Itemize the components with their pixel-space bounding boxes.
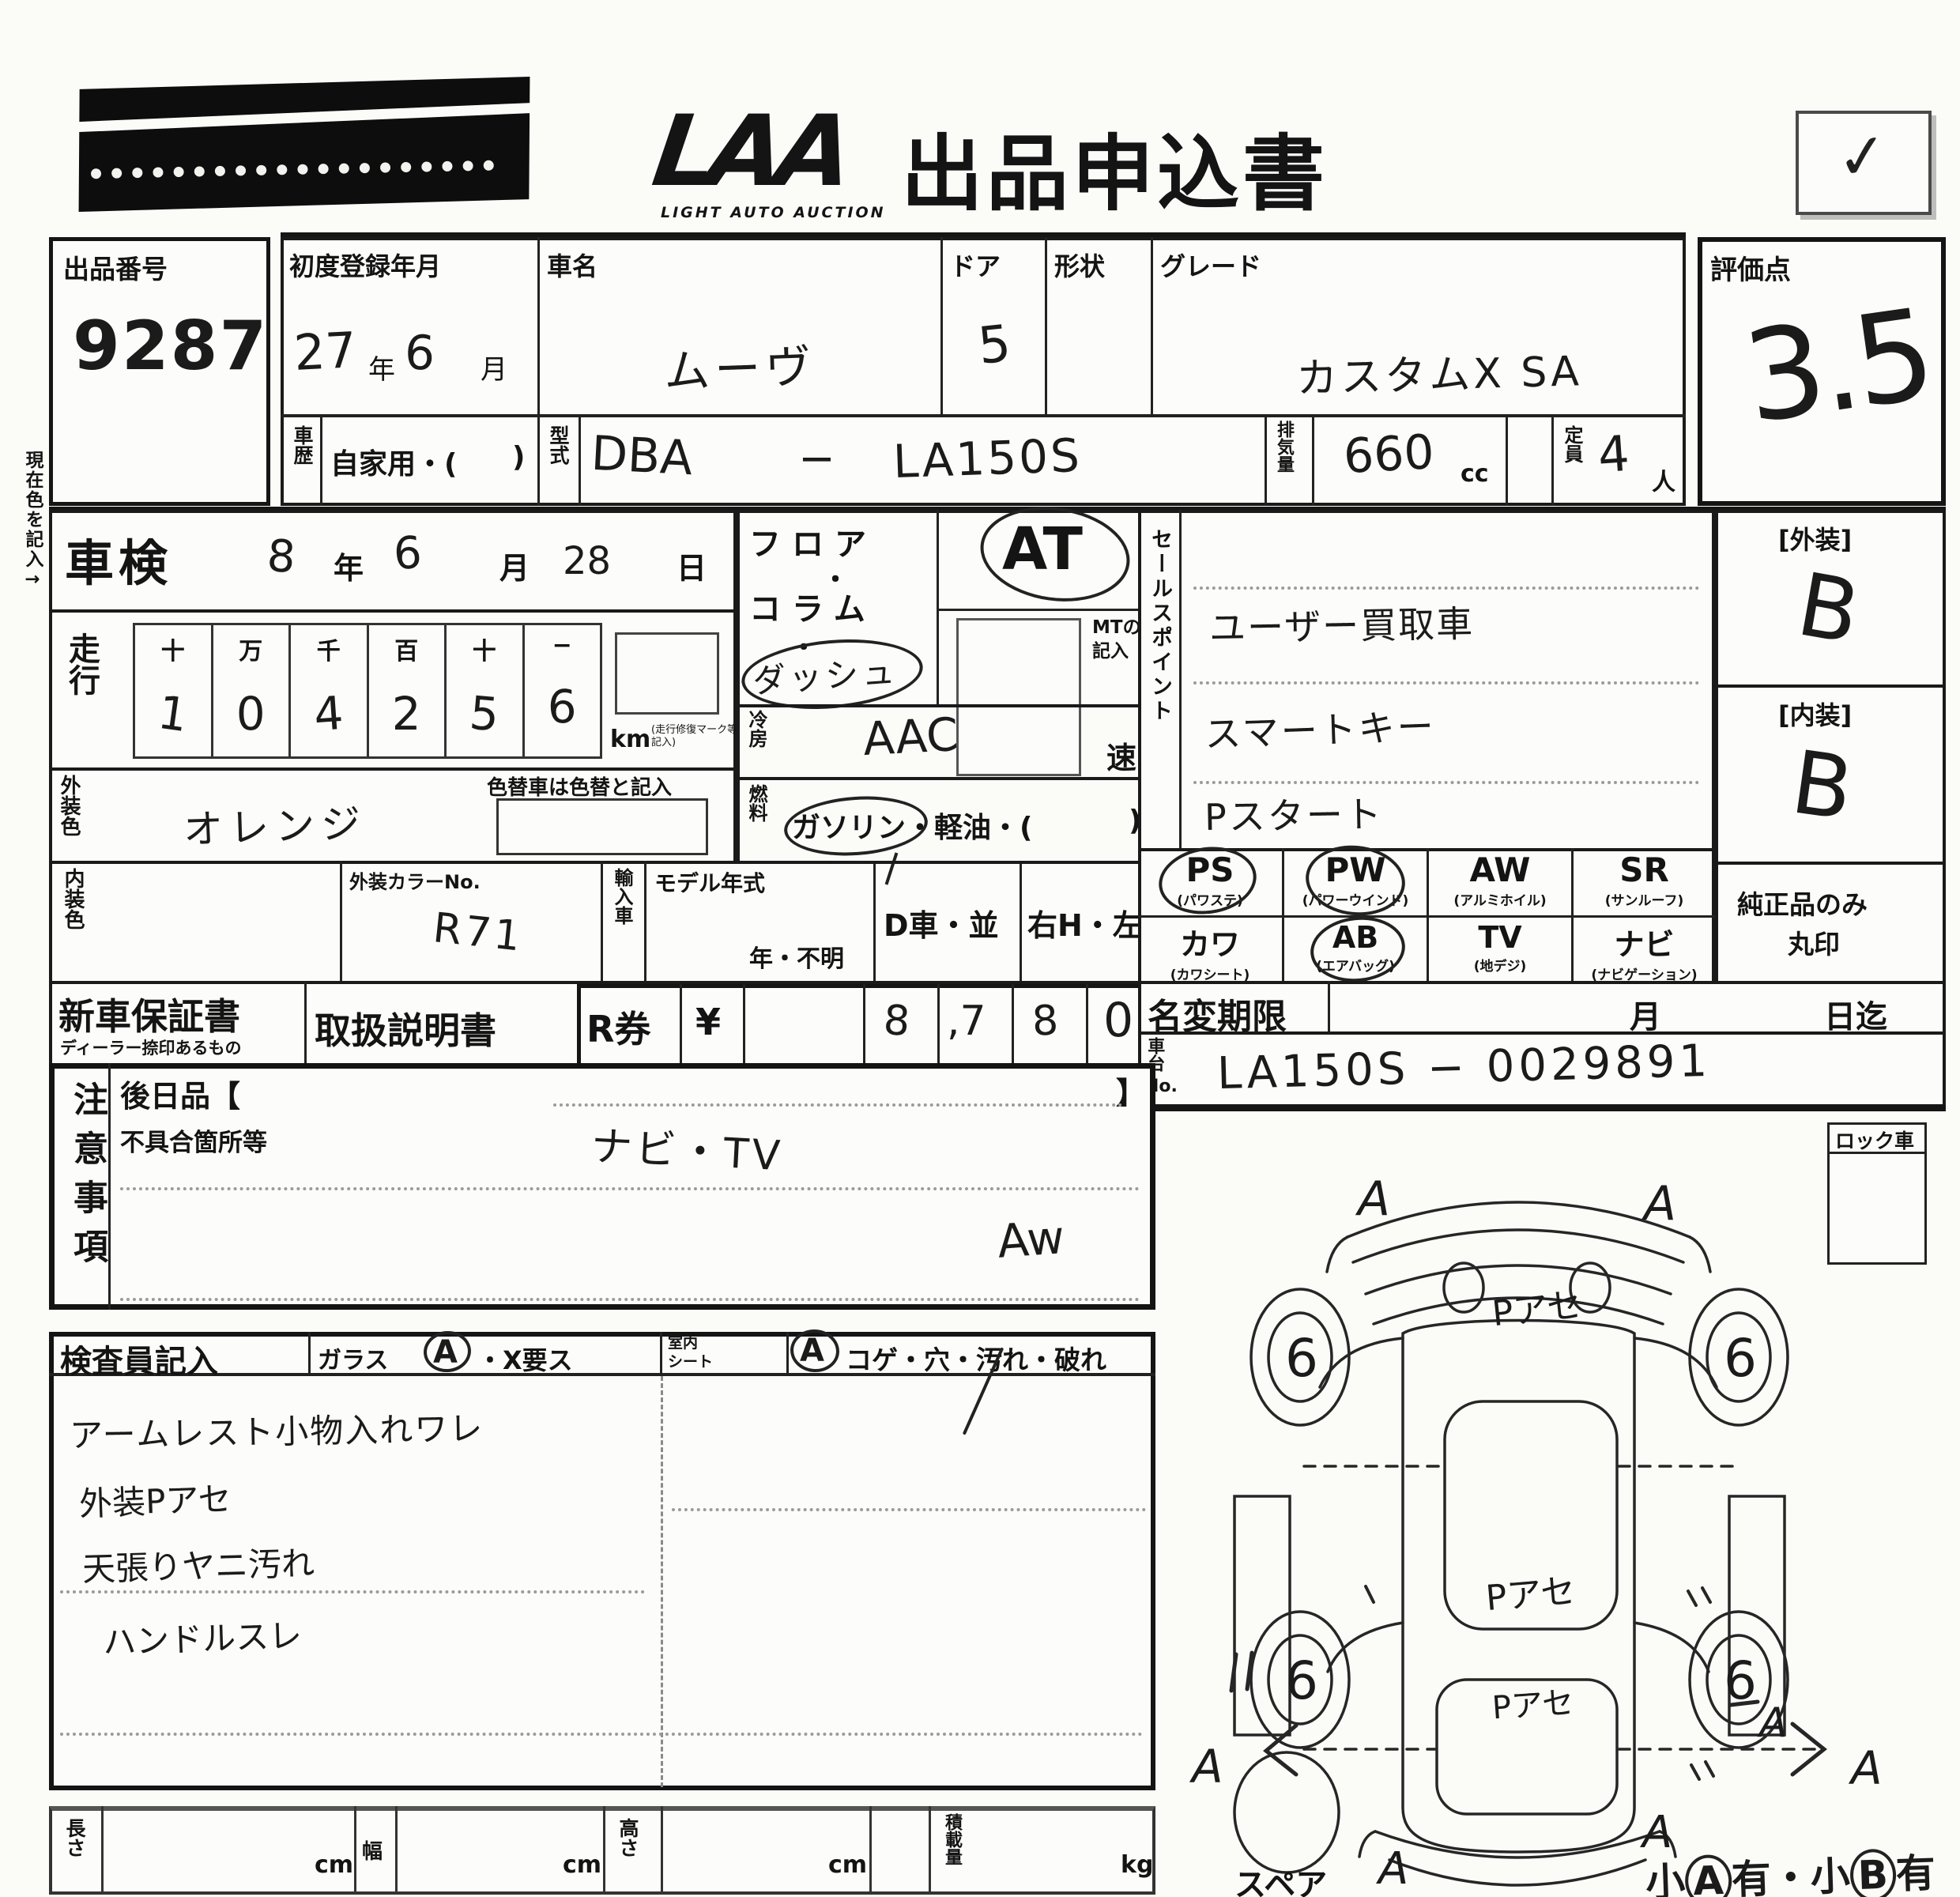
shaken-month-unit: 月 — [499, 544, 530, 587]
mileage-digit: 6 — [525, 680, 601, 734]
name-change-month-unit: 月 — [1630, 991, 1661, 1037]
dotted-line — [553, 1103, 1122, 1107]
check-icon: ✓ — [1833, 119, 1891, 195]
diagram-panel-mark-hood: Pアセ — [1491, 1285, 1584, 1335]
mileage-unit: km — [610, 726, 650, 753]
notes-later-label: 後日品【 — [120, 1072, 240, 1115]
mileage-digit: 1 — [132, 682, 214, 746]
diagram-corner-mark: A — [1355, 1171, 1390, 1227]
auction-sheet: LAA LIGHT AUTO AUCTION 出品申込書 ✓ 出品番号 9287… — [0, 0, 1960, 1897]
sales-points-label: セールスポイント — [1144, 528, 1175, 724]
height-label: 高さ — [613, 1818, 642, 1857]
mileage-col-header: 万 — [213, 632, 289, 666]
equip-aw: AW(アルミホイル) — [1429, 850, 1571, 909]
lot-number-value: 9287 — [73, 307, 268, 386]
mileage-unit-note: (走行修復マーク等記入) — [651, 724, 738, 749]
score-value: 3.5 — [1736, 282, 1939, 452]
car-name-value: ムーヴ — [663, 330, 817, 402]
dotted-line — [1193, 681, 1699, 685]
history-label: 車歴 — [288, 425, 316, 465]
equip-navi: ナビ(ナビゲーション) — [1574, 920, 1715, 983]
sales-point-item: ユーザー買取車 — [1208, 595, 1474, 652]
note-a-circled: A — [1684, 1854, 1732, 1897]
diagram-wheel-mark: 6 — [1724, 1650, 1757, 1711]
exterior-grade-label: [外装] — [1778, 520, 1852, 556]
first-registration-month: 6 — [404, 325, 436, 381]
first-registration-label: 初度登録年月 — [289, 247, 441, 283]
capacity-value: 4 — [1596, 424, 1631, 485]
width-unit: cm — [563, 1851, 601, 1879]
spare-label: スペア — [1234, 1859, 1327, 1897]
diagram-corner-mark: A — [1376, 1843, 1408, 1895]
model-code-prefix: DBA — [590, 426, 694, 487]
height-unit: cm — [828, 1851, 867, 1879]
inspector-glass-rest: ・X要ス — [477, 1341, 573, 1377]
r-ticket-digit: 0 — [1103, 993, 1133, 1048]
diagram-wheel-mark: 6 — [1285, 1328, 1318, 1389]
dotted-line — [120, 1298, 1140, 1301]
inspector-seat-label: 室内シート — [668, 1334, 713, 1372]
length-label: 長さ — [60, 1818, 89, 1857]
shift-column: コラム — [749, 583, 876, 629]
diagram-panel-mark-rear: Pアセ — [1491, 1684, 1575, 1726]
mileage-table: 十 1 万 0 千 4 百 2 十 5 − 6 — [133, 623, 602, 759]
mileage-digit: 4 — [289, 685, 368, 743]
width-label: 幅 — [362, 1835, 383, 1865]
inspector-label: 検査員記入 — [60, 1336, 218, 1382]
mileage-digit: 0 — [213, 687, 289, 741]
shaken-year-unit: 年 — [334, 544, 364, 587]
diagram-side-mark: A — [1189, 1740, 1223, 1793]
shaken-day-unit: 日 — [677, 544, 707, 587]
shaken-label: 車検 — [65, 523, 172, 594]
notes-entry-1: ナビ・TV — [590, 1113, 785, 1182]
dotted-line — [60, 1733, 1143, 1736]
equip-kawa: カワ(カワシート) — [1138, 920, 1282, 983]
diagram-bottom-note: 小A有・小B有 — [1645, 1842, 1936, 1897]
model-code-dash: − — [798, 433, 835, 485]
notes-entry-2: Aw — [996, 1210, 1066, 1269]
car-name-label: 車名 — [547, 247, 597, 283]
grade-label: グレード — [1160, 247, 1261, 283]
exterior-color-label: 外装色 — [58, 775, 79, 836]
inspector-seat-rest: コゲ・穴・汚れ・破れ — [846, 1339, 1106, 1377]
mileage-label: 走行 — [58, 632, 104, 696]
color-no-value: R71 — [431, 904, 526, 961]
manual-label: 取扱説明書 — [315, 1002, 496, 1054]
first-registration-month-unit: 月 — [481, 348, 507, 387]
score-label: 評価点 — [1710, 248, 1791, 287]
dotted-line — [60, 1590, 645, 1593]
inspector-finding: 外装Pアセ — [78, 1473, 232, 1526]
shaken-month: 6 — [392, 527, 423, 580]
mileage-col-header: 百 — [369, 632, 445, 666]
note-b-circled: B — [1849, 1848, 1897, 1897]
diagram-panel-mark-roof: Pアセ — [1484, 1571, 1577, 1619]
dotted-line — [1193, 586, 1699, 590]
color-no-label: 外装カラーNo. — [349, 866, 481, 894]
d-car-option: D車・並 — [884, 901, 999, 945]
inspector-finding: 天張りヤニ汚れ — [81, 1537, 315, 1591]
first-registration-year: 27 — [292, 321, 358, 382]
mileage-stamp-box — [615, 632, 719, 715]
fuel-label: 燃料 — [743, 784, 771, 822]
diagram-wheel-mark: 6 — [1724, 1328, 1757, 1389]
displacement-value: 660 — [1342, 424, 1435, 485]
diagram-side-mark: A — [1848, 1741, 1883, 1795]
inspector-finding: アームレスト小物入れワレ — [70, 1401, 484, 1457]
load-unit: kg — [1121, 1851, 1153, 1879]
car-damage-diagram: A A A A A A A 6 6 6 6 Pアセ Pアセ Pアセ — [1185, 1126, 1960, 1897]
mileage-col-header: − — [525, 632, 601, 659]
grade-value: カスタムX SA — [1295, 338, 1583, 404]
load-label: 積載量 — [939, 1813, 964, 1865]
shift-floor: フロア — [749, 519, 877, 564]
margin-note: 現在色を記入→ — [19, 451, 46, 591]
mileage-col-header: 十 — [135, 632, 211, 666]
equip-sr: SR(サンルーフ) — [1574, 850, 1715, 909]
laa-logo-subtitle: LIGHT AUTO AUCTION — [661, 204, 886, 221]
capacity-unit: 人 — [1652, 462, 1675, 497]
model-code-label: 型式 — [544, 425, 572, 465]
notes-defect-label: 不具合箇所等 — [120, 1122, 267, 1158]
first-registration-year-unit: 年 — [368, 348, 395, 387]
mileage-col-header: 千 — [291, 632, 367, 666]
approval-checkbox[interactable]: ✓ — [1796, 111, 1932, 215]
interior-color-label: 内装色 — [58, 868, 88, 930]
color-change-box — [496, 798, 708, 855]
diagram-corner-mark: A — [1641, 1176, 1676, 1231]
genuine-parts-note2: 丸印 — [1788, 923, 1840, 961]
capacity-label: 定員 — [1559, 425, 1586, 463]
inspector-finding: ハンドルスレ — [102, 1609, 303, 1665]
interior-grade-label: [内装] — [1778, 696, 1852, 732]
model-year-label: モデル年式 — [654, 866, 765, 898]
r-ticket-digit: 8 — [1031, 997, 1059, 1046]
shaken-year: 8 — [266, 530, 297, 583]
r-ticket-label: R券 — [586, 1001, 650, 1053]
shape-label: 形状 — [1054, 247, 1105, 283]
history-value: 自家用・( — [330, 441, 457, 482]
displacement-label: 排気量 — [1271, 421, 1296, 473]
model-year-value: 年・不明 — [749, 939, 844, 974]
mileage-col-header: 十 — [447, 632, 522, 666]
ac-value: AAC — [861, 707, 959, 766]
displacement-unit: cc — [1461, 460, 1489, 488]
doors-value: 5 — [975, 315, 1013, 376]
notes-label: 注意事項 — [62, 1081, 112, 1277]
r-ticket-currency: ¥ — [695, 1001, 721, 1043]
equip-tv: TV(地デジ) — [1429, 920, 1571, 975]
page-title: 出品申込書 — [901, 107, 1328, 226]
doors-label: ドア — [950, 247, 1001, 283]
sales-point-item: スマートキー — [1204, 698, 1437, 758]
warranty-sub: ディーラー捺印あるもの — [60, 1035, 242, 1059]
diagram-rear-mark: A — [1757, 1699, 1788, 1747]
dotted-line — [1193, 781, 1699, 784]
shaken-day: 28 — [563, 539, 611, 583]
exterior-color-value: オレンジ — [183, 792, 367, 855]
lot-number-label: 出品番号 — [63, 248, 168, 286]
mileage-digit: 5 — [444, 684, 524, 744]
model-code-value: LA150S — [892, 428, 1083, 488]
dotted-line — [672, 1508, 1146, 1511]
ac-label: 冷房 — [743, 710, 771, 748]
name-change-day-unit: 日迄 — [1824, 991, 1887, 1037]
redacted-stamp — [79, 77, 530, 212]
history-paren: ) — [512, 441, 525, 473]
mileage-digit: 2 — [369, 687, 445, 741]
diagram-wheel-mark: 6 — [1285, 1650, 1318, 1711]
laa-logo: LAA — [646, 95, 853, 209]
color-change-note: 色替車は色替と記入 — [487, 771, 672, 801]
sales-point-item: Pスタート — [1204, 786, 1384, 841]
genuine-parts-note: 純正品のみ — [1737, 884, 1868, 922]
warranty-label: 新車保証書 — [58, 988, 240, 1040]
import-car-label: 輸入車 — [609, 868, 636, 925]
inspector-glass-label: ガラス — [318, 1341, 388, 1375]
length-unit: cm — [315, 1851, 353, 1879]
r-ticket-digit: 8 — [882, 997, 911, 1046]
inspector-column-divider — [661, 1376, 663, 1787]
dotted-line — [120, 1187, 1140, 1190]
r-ticket-digit: ,7 — [947, 998, 986, 1045]
dimensions-row — [49, 1806, 1155, 1895]
